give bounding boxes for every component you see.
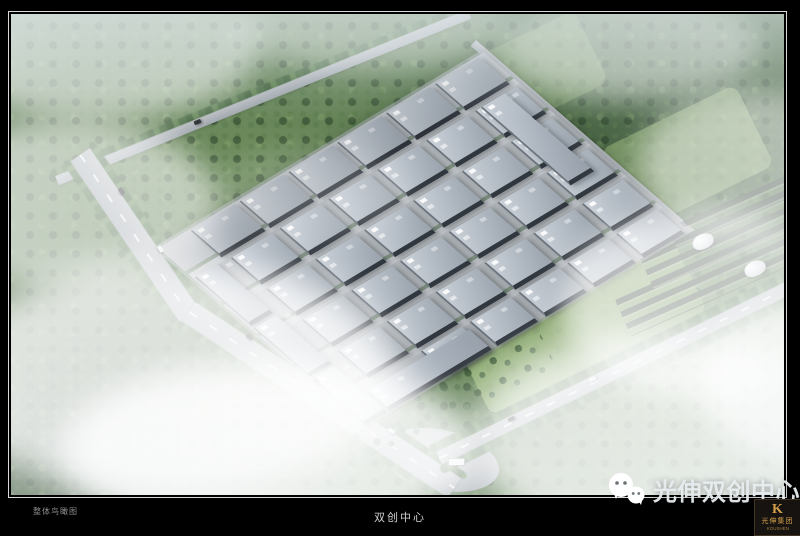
drawing-title-center: 双创中心 — [0, 509, 800, 525]
page: { "titleblock": { "label_left": "整体鸟瞰图",… — [0, 0, 800, 534]
sky-fade — [11, 14, 784, 495]
image-frame — [8, 11, 787, 498]
aerial-rendering — [11, 14, 784, 495]
company-logo: K 光伸集团 KOUSHEN — [754, 499, 800, 536]
logo-letter: K — [772, 503, 783, 517]
logo-latin-name: KOUSHEN — [766, 527, 788, 532]
wechat-icon — [608, 473, 648, 507]
logo-company-name: 光伸集团 — [762, 518, 794, 525]
